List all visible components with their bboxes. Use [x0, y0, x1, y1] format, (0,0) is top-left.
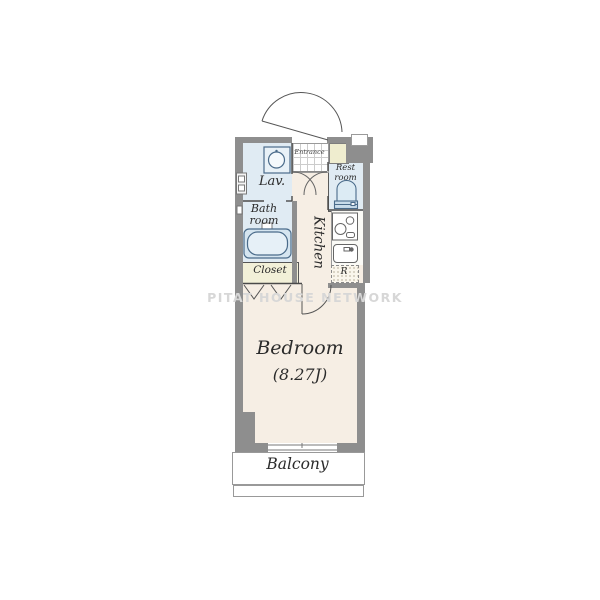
bedroom-size-label: (8.27J)	[243, 366, 357, 384]
balcony-label: Balcony	[232, 456, 363, 473]
lavatory-floor	[243, 143, 292, 201]
kitchen-label: Kitchen	[310, 203, 325, 283]
top-corner-notch	[351, 134, 368, 146]
balcony-window	[268, 443, 337, 452]
outer-wall-bottom-right	[337, 443, 365, 452]
refrigerator-label: R	[331, 267, 357, 277]
closet-label: Closet	[241, 265, 299, 277]
entrance-label: Entrance	[292, 149, 327, 156]
outer-wall-left	[235, 143, 243, 412]
watermark-text: PITAT HOUSE NETWORK	[205, 290, 405, 305]
outer-wall-bottom-left	[235, 443, 268, 452]
bathroom-label: Bath room	[243, 203, 285, 228]
bedroom-top-wall-segment	[328, 283, 357, 288]
kitchen-counter	[331, 211, 364, 265]
restroom-label: Rest room	[329, 164, 362, 183]
outer-wall-right-upper	[363, 163, 370, 283]
lavatory-label: Lav.	[252, 175, 292, 190]
entrance-door-swing	[262, 93, 342, 140]
outer-wall-top-left	[235, 137, 292, 143]
floorplan-canvas: Lav. Bath room Closet Rest room Entrance…	[0, 0, 600, 600]
left-pillar	[235, 412, 255, 443]
balcony-railing-edge	[233, 485, 364, 497]
outer-wall-top-right	[327, 137, 346, 143]
outer-wall-right-lower	[357, 283, 365, 443]
bedroom-floor	[243, 283, 357, 443]
bedroom-label: Bedroom	[243, 338, 357, 359]
